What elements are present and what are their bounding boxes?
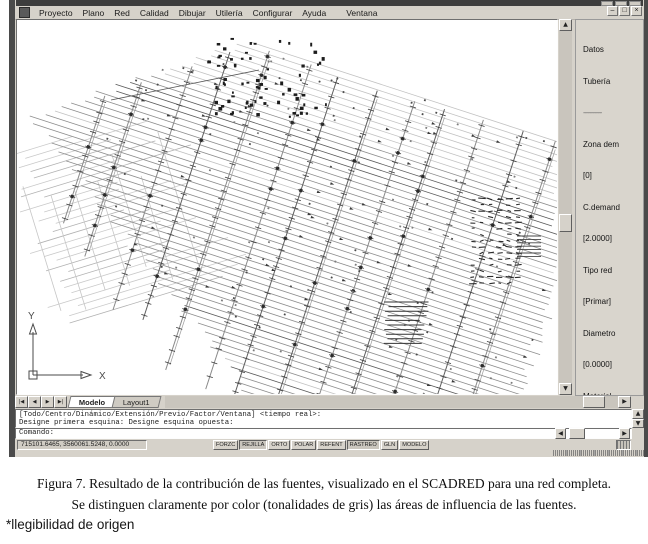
panel-value-zona[interactable]: [0] — [583, 171, 643, 182]
panel-value-cdemand[interactable]: [2.0000] — [583, 234, 643, 245]
figure-page: Proyecto Plano Red Calidad Dibujar Utile… — [0, 0, 648, 544]
status-toggle[interactable]: ORTO — [268, 440, 290, 450]
layout-tab-row: |◀ ◀ ▶ ▶| Modelo Layout1 ▶ — [15, 396, 644, 409]
figure-caption: Figura 7. Resultado de la contribución d… — [0, 473, 648, 515]
panel-subtitle: Tubería — [583, 77, 643, 88]
command-scroll-right-icon[interactable]: ▶ — [619, 428, 630, 439]
status-toggle[interactable]: MODELO — [399, 440, 429, 450]
child-restore-icon[interactable]: □ — [619, 6, 630, 16]
tab-next-icon[interactable]: ▶ — [41, 396, 54, 408]
menu-ayuda[interactable]: Ayuda — [297, 7, 331, 19]
vertical-scroll-thumb[interactable] — [559, 214, 572, 232]
menu-configurar[interactable]: Configurar — [248, 7, 298, 19]
panel-value-diametro[interactable]: [0.0000] — [583, 360, 643, 371]
command-input[interactable]: Comando: — [15, 428, 632, 439]
menu-ventana[interactable]: Ventana — [341, 7, 382, 19]
child-window-controls: – □ × — [607, 6, 642, 16]
status-toggle[interactable]: GLN — [381, 440, 399, 450]
menu-bar: Proyecto Plano Red Calidad Dibujar Utile… — [15, 6, 644, 20]
panel-divider: ----------- — [583, 108, 643, 119]
panel-label-cdemand: C.demand — [583, 203, 643, 214]
panel-title: Datos — [583, 45, 643, 56]
status-toggle[interactable]: POLAR — [291, 440, 316, 450]
ucs-icon: Y X — [28, 311, 106, 382]
tab-prev-icon[interactable]: ◀ — [28, 396, 41, 408]
network-drawing[interactable]: Y X — [17, 20, 557, 394]
command-history-line2: Designe primera esquina: Designe esquina… — [19, 419, 234, 427]
status-bar: 715101.6465, 3560061.5248, 0.0000 FORZC … — [15, 439, 644, 451]
panel-value-tipored[interactable]: [Primar] — [583, 297, 643, 308]
horizontal-scrollbar[interactable]: ▶ — [165, 396, 631, 408]
tab-layout1[interactable]: Layout1 — [112, 396, 162, 408]
datos-panel: Datos Tubería ----------- Zona dem [0] C… — [575, 19, 644, 396]
tab-modelo[interactable]: Modelo — [68, 396, 117, 408]
caption-line2: Se distinguen claramente por color (tona… — [0, 494, 648, 515]
work-area: Y X ▲ ▼ Datos Tubería ----------- Zona d… — [15, 19, 644, 396]
child-minimize-icon[interactable]: – — [607, 6, 618, 16]
tab-first-icon[interactable]: |◀ — [15, 396, 28, 408]
command-history-line1: [Todo/Centro/Dinámico/Extensión/Previo/F… — [19, 411, 321, 419]
status-toggles: FORZC REJILLA ORTO POLAR REFENT RASTREO … — [213, 440, 429, 450]
menu-utileria[interactable]: Utilería — [211, 7, 248, 19]
drawing-canvas[interactable]: Y X — [16, 19, 558, 395]
scroll-down-icon[interactable]: ▼ — [559, 383, 572, 395]
menu-red[interactable]: Red — [109, 7, 135, 19]
status-toggle[interactable]: REFENT — [317, 440, 345, 450]
horizontal-scroll-thumb[interactable] — [583, 396, 605, 408]
caption-footnote: *llegibilidad de origen — [6, 517, 134, 532]
scroll-right-icon[interactable]: ▶ — [618, 396, 631, 408]
command-history: [Todo/Centro/Dinámico/Extensión/Previo/F… — [15, 409, 632, 428]
panel-label-diametro: Diametro — [583, 329, 643, 340]
status-toggle[interactable]: REJILLA — [239, 440, 267, 450]
menu-calidad[interactable]: Calidad — [135, 7, 174, 19]
scadred-window: Proyecto Plano Red Calidad Dibujar Utile… — [9, 0, 648, 457]
vertical-scrollbar[interactable]: ▲ ▼ — [559, 19, 572, 395]
command-scroll-down-icon[interactable]: ▼ — [632, 419, 644, 428]
command-scroll-left-icon[interactable]: ◀ — [555, 428, 566, 439]
ucs-x-label: X — [99, 371, 106, 382]
status-toggle[interactable]: FORZC — [213, 440, 238, 450]
layout-tabs: Modelo Layout1 — [71, 396, 160, 408]
menu-plano[interactable]: Plano — [78, 7, 110, 19]
menu-proyecto[interactable]: Proyecto — [34, 7, 78, 19]
panel-label-zona: Zona dem — [583, 140, 643, 151]
caption-line1: Figura 7. Resultado de la contribución d… — [0, 473, 648, 494]
illegible-text-strip — [553, 450, 644, 456]
window-bottom-edge — [15, 451, 644, 457]
command-hscroll-thumb[interactable] — [569, 428, 585, 439]
app-icon[interactable] — [19, 7, 30, 18]
tab-last-icon[interactable]: ▶| — [54, 396, 67, 408]
child-close-icon[interactable]: × — [631, 6, 642, 16]
coordinates-readout[interactable]: 715101.6465, 3560061.5248, 0.0000 — [17, 440, 147, 450]
status-toggle[interactable]: RASTREO — [347, 440, 380, 450]
command-scroll-up-icon[interactable]: ▲ — [632, 409, 644, 419]
scroll-up-icon[interactable]: ▲ — [559, 19, 572, 31]
ucs-y-label: Y — [28, 311, 35, 322]
status-tray-icon[interactable] — [616, 440, 631, 450]
panel-label-tipored: Tipo red — [583, 266, 643, 277]
menu-dibujar[interactable]: Dibujar — [174, 7, 211, 19]
